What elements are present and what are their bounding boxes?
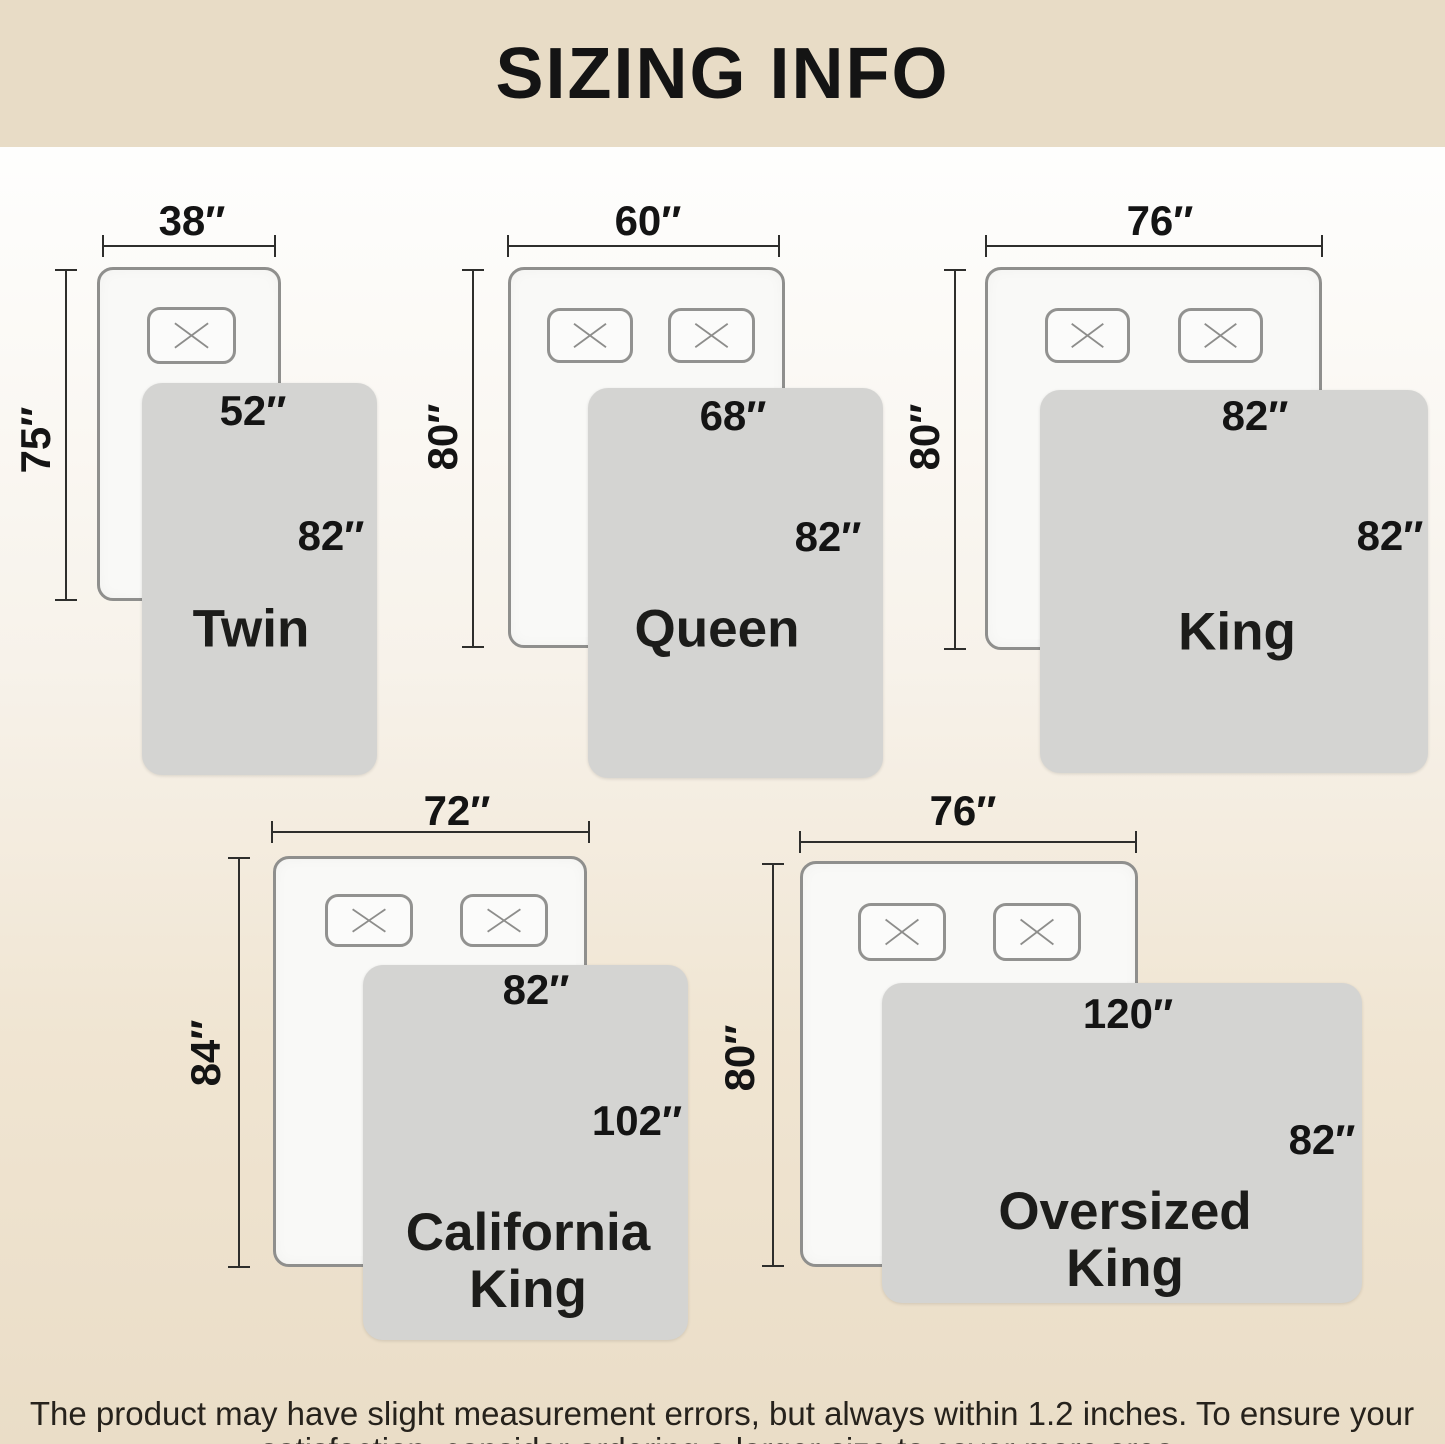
pillow-x-icon [463, 897, 545, 944]
bed-width-label: 76″ [1127, 197, 1194, 245]
bed-length-label: 80″ [419, 404, 467, 471]
pillow-x-icon [996, 906, 1078, 958]
pillow [1178, 308, 1263, 363]
size-name: CaliforniaKing [406, 1204, 650, 1318]
page-title: SIZING INFO [496, 33, 950, 115]
blanket-width-label: 82″ [503, 966, 570, 1014]
blanket-length-label: 82″ [1289, 1116, 1356, 1164]
bed-length-label: 80″ [901, 404, 949, 471]
bed-length-dimension-line [472, 269, 474, 648]
bed-length-label: 75″ [12, 407, 60, 474]
pillow-x-icon [550, 311, 630, 360]
bed-length-label: 80″ [716, 1025, 764, 1092]
pillow [993, 903, 1081, 961]
pillow-x-icon [1048, 311, 1127, 360]
bed-width-dimension-line [271, 831, 590, 833]
sizing-info-page: SIZING INFO 38″ 75″ 52″ 82″ Twin 60″ 80″… [0, 0, 1445, 1444]
pillow [668, 308, 755, 363]
blanket-length-label: 102″ [592, 1097, 682, 1145]
blanket-width-label: 52″ [220, 387, 287, 435]
bed-length-label: 84″ [182, 1020, 230, 1087]
blanket [588, 388, 883, 778]
blanket-width-label: 120″ [1083, 990, 1173, 1038]
pillow-x-icon [1181, 311, 1260, 360]
blanket-width-label: 68″ [700, 392, 767, 440]
pillow-x-icon [861, 906, 943, 958]
size-name: Twin [193, 601, 310, 658]
bed-length-dimension-line [954, 269, 956, 650]
footnote-line-1: The product may have slight measurement … [30, 1395, 1414, 1433]
blanket [1040, 390, 1428, 773]
blanket-width-label: 82″ [1222, 392, 1289, 440]
pillow [547, 308, 633, 363]
size-name: Queen [635, 601, 800, 658]
size-name: King [1178, 604, 1296, 661]
bed-width-dimension-line [799, 841, 1137, 843]
bed-width-dimension-line [985, 245, 1323, 247]
header-band: SIZING INFO [0, 0, 1445, 147]
bed-length-dimension-line [65, 269, 67, 601]
blanket-length-label: 82″ [1357, 512, 1424, 560]
blanket [142, 383, 377, 775]
blanket-length-label: 82″ [298, 512, 365, 560]
pillow [1045, 308, 1130, 363]
bed-length-dimension-line [772, 863, 774, 1267]
blanket-length-label: 82″ [795, 513, 862, 561]
bed-length-dimension-line [238, 857, 240, 1268]
bed-width-label: 76″ [930, 787, 997, 835]
size-name: OversizedKing [998, 1183, 1251, 1297]
bed-width-label: 60″ [615, 197, 682, 245]
bed-width-label: 72″ [424, 787, 491, 835]
bed-width-dimension-line [507, 245, 780, 247]
pillow [858, 903, 946, 961]
pillow-x-icon [150, 310, 233, 361]
bed-width-label: 38″ [159, 197, 226, 245]
pillow-x-icon [328, 897, 410, 944]
pillow [325, 894, 413, 947]
pillow [460, 894, 548, 947]
pillow-x-icon [671, 311, 752, 360]
footnote-line-2: satisfaction, consider ordering a larger… [261, 1431, 1184, 1444]
bed-width-dimension-line [102, 245, 276, 247]
pillow [147, 307, 236, 364]
